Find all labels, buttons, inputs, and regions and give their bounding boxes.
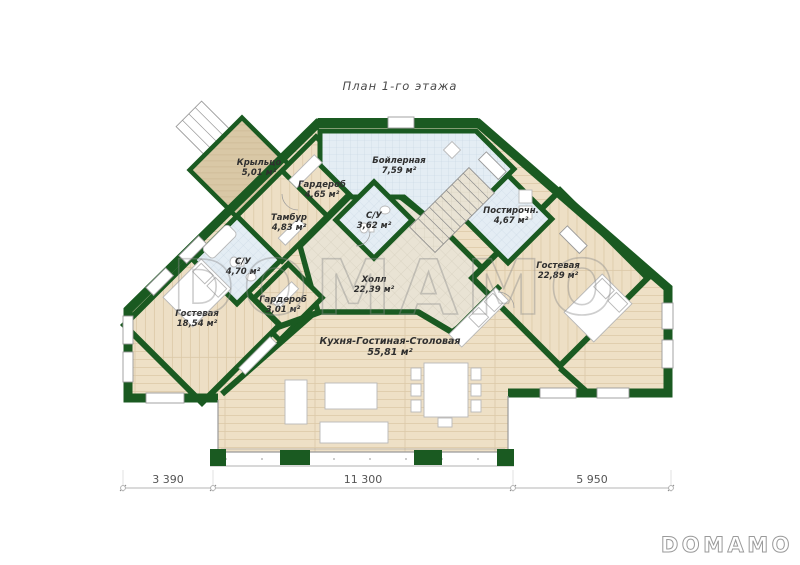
floor-plan-page: Крыльцо5,01 м² Гардероб4,65 м² Бойлерная…	[0, 0, 800, 565]
room-label-tambur: Тамбур4,83 м²	[271, 212, 307, 233]
coffee-table	[325, 383, 377, 409]
dimension-label-center: 11 300	[344, 473, 383, 486]
room-label-garderob-465: Гардероб4,65 м²	[298, 179, 346, 200]
sofa-horizontal	[320, 422, 388, 443]
brand-logo: DOMAMO	[661, 533, 793, 557]
page-title: План 1-го этажа	[343, 79, 458, 93]
dimension-label-right: 5 950	[576, 473, 608, 486]
dimension-line: 3 390 11 300 5 950	[120, 470, 674, 492]
floor-plan-canvas: Крыльцо5,01 м² Гардероб4,65 м² Бойлерная…	[0, 0, 800, 565]
watermark-center: DOMAMO	[172, 243, 622, 332]
dimension-label-left: 3 390	[152, 473, 184, 486]
room-label-krylco: Крыльцо5,01 м²	[237, 158, 282, 178]
sofa-vertical	[285, 380, 307, 424]
